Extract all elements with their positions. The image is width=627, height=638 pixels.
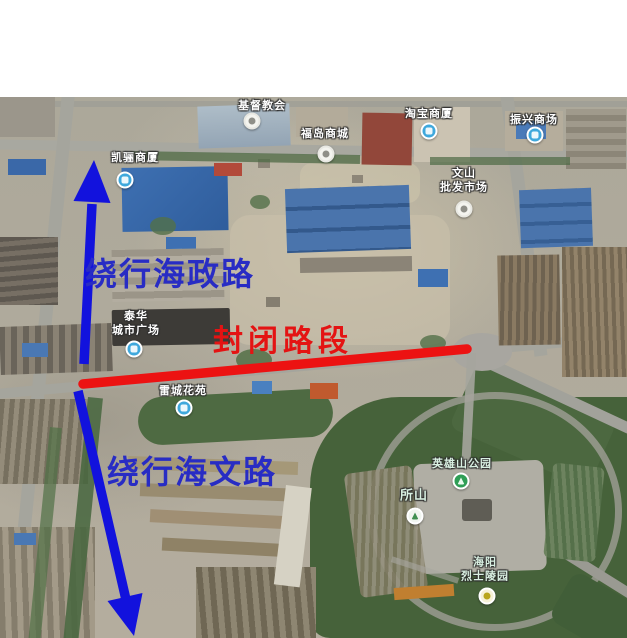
park-poi-icon — [453, 473, 470, 490]
memorial-poi-icon — [479, 588, 496, 605]
detour-south-text: 绕行海文路 — [107, 447, 277, 493]
poi-label-hero-mountain-park: 英雄山公园 — [432, 457, 492, 471]
mall-poi-icon — [527, 127, 544, 144]
poi-label-wenshan-market: 文山 批发市场 — [440, 167, 488, 196]
mall-poi-icon — [126, 341, 143, 358]
poi-label-church: 基督教会 — [238, 99, 286, 113]
mall-poi-icon — [117, 172, 134, 189]
poi-label-taihua-plaza: 泰华 城市广场 — [112, 310, 160, 339]
shop-poi-icon — [318, 146, 335, 163]
route-overlay — [0, 97, 627, 638]
road-closure-notice-image: 基督教会 凯骊商厦 福岛商城 淘宝商厦 振兴商场 文山 批发市场 泰华 城市广场… — [0, 0, 627, 638]
poi-label-martyrs-cemetery: 海阳 烈士陵园 — [461, 556, 509, 585]
poi-label-suoshan: 所山 — [400, 488, 428, 505]
detour-north-text: 绕行海政路 — [85, 249, 255, 295]
residence-poi-icon — [176, 400, 193, 417]
mall-poi-icon — [421, 123, 438, 140]
church-poi-icon — [244, 113, 261, 130]
mountain-poi-icon — [407, 508, 424, 525]
closed-segment-text: 封闭路段 — [213, 316, 353, 360]
satellite-map: 基督教会 凯骊商厦 福岛商城 淘宝商厦 振兴商场 文山 批发市场 泰华 城市广场… — [0, 97, 627, 638]
poi-label-fudao-mall: 福岛商城 — [301, 127, 349, 141]
poi-label-leicheng-garden: 雷城花苑 — [159, 384, 207, 398]
market-poi-icon — [456, 201, 473, 218]
detour-arrow-south — [78, 391, 143, 636]
poi-label-zhenxing-mall: 振兴商场 — [510, 113, 558, 127]
poi-label-kaili-mall: 凯骊商厦 — [111, 151, 159, 165]
poi-label-taobao-mall: 淘宝商厦 — [405, 107, 453, 121]
